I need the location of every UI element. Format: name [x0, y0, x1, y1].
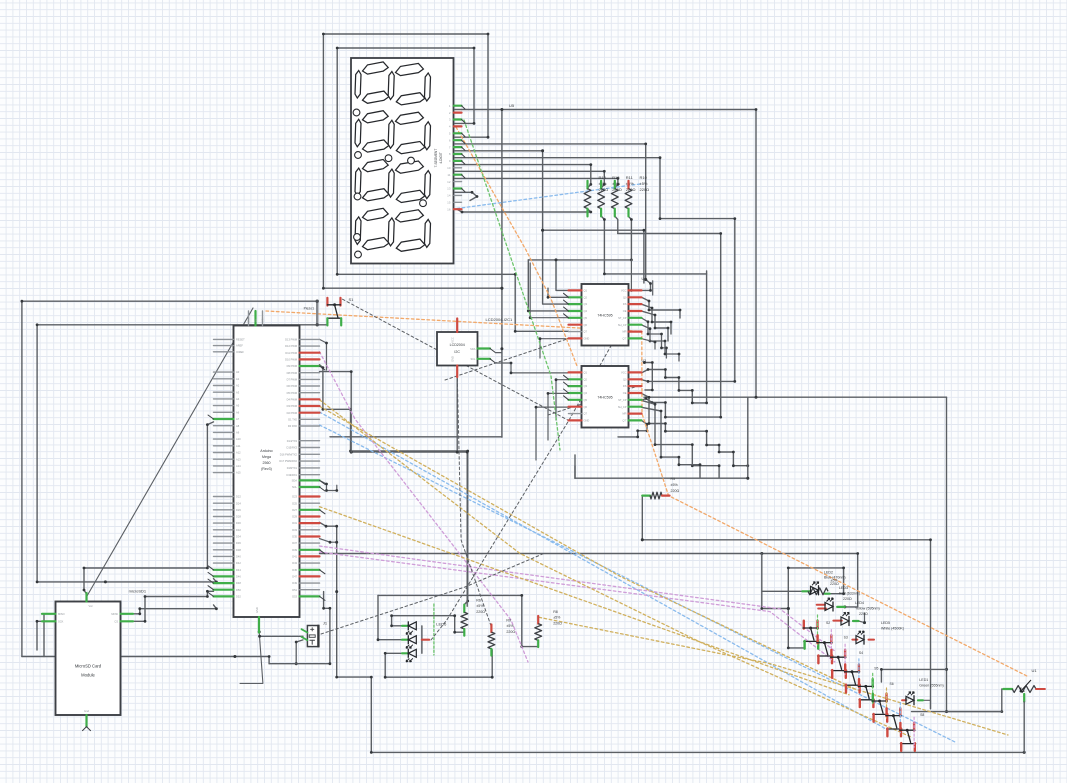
svg-text:VCC: VCC: [621, 371, 627, 375]
svg-text:I2C: I2C: [454, 350, 460, 354]
svg-text:U1: U1: [1032, 668, 1038, 673]
svg-text:D51: D51: [292, 588, 297, 592]
svg-text:MR: MR: [622, 330, 626, 334]
svg-text:SH_CP: SH_CP: [618, 323, 627, 327]
svg-text:D10 PWM: D10 PWM: [285, 358, 297, 362]
svg-text:Piezo1: Piezo1: [304, 307, 314, 311]
svg-text:A13: A13: [236, 457, 241, 461]
svg-text:AREF: AREF: [236, 344, 243, 348]
svg-text:VCC: VCC: [451, 337, 455, 343]
svg-text:Q0: Q0: [623, 377, 627, 381]
svg-text:LED1: LED1: [919, 678, 928, 682]
svg-text:±5%: ±5%: [612, 181, 620, 186]
svg-text:GND: GND: [584, 419, 590, 423]
svg-text:D35: D35: [292, 535, 297, 539]
svg-text:D11 PWM: D11 PWM: [285, 351, 297, 355]
svg-text:D12 PWM: D12 PWM: [285, 344, 297, 348]
svg-text:MR: MR: [622, 412, 626, 416]
svg-text:Q3: Q3: [584, 302, 588, 306]
svg-text:VCC: VCC: [621, 289, 627, 293]
svg-text:microSD1: microSD1: [129, 589, 147, 594]
svg-text:White (4500K): White (4500K): [881, 627, 904, 631]
svg-text:D18/TX1: D18/TX1: [287, 466, 298, 470]
svg-text:Q1: Q1: [584, 289, 588, 293]
svg-text:S6: S6: [890, 682, 894, 686]
svg-text:4-DIGIT: 4-DIGIT: [439, 152, 443, 163]
svg-text:SDA: SDA: [470, 347, 476, 351]
svg-text:S1: S1: [349, 297, 355, 302]
svg-text:D15/RX3: D15/RX3: [286, 446, 297, 450]
svg-text:Q4: Q4: [584, 391, 588, 395]
svg-text:DS: DS: [623, 384, 627, 388]
svg-text:2560: 2560: [263, 461, 271, 465]
svg-text:D50: D50: [236, 588, 241, 592]
svg-text:D52: D52: [236, 595, 241, 599]
svg-text:Mega: Mega: [262, 455, 271, 459]
svg-text:D53: D53: [292, 595, 297, 599]
svg-text:220Ω: 220Ω: [506, 630, 515, 634]
svg-text:Arduino: Arduino: [260, 449, 272, 453]
svg-text:SDA: SDA: [292, 479, 298, 483]
svg-text:D45: D45: [292, 568, 297, 572]
svg-text:±5%: ±5%: [506, 624, 514, 628]
svg-text:D46: D46: [236, 575, 241, 579]
svg-text:U3: U3: [642, 359, 647, 363]
svg-text:D44: D44: [236, 568, 241, 572]
svg-text:OE: OE: [623, 391, 627, 395]
svg-text:R9: R9: [506, 618, 511, 622]
svg-text:D36: D36: [236, 541, 241, 545]
svg-text:±5%: ±5%: [553, 616, 561, 620]
svg-text:GND: GND: [451, 356, 455, 362]
svg-text:Q7': Q7': [623, 419, 627, 423]
svg-text:S8: S8: [920, 713, 924, 717]
svg-text:A3: A3: [236, 390, 240, 394]
svg-text:LED2: LED2: [824, 571, 833, 575]
svg-text:MOSI: MOSI: [111, 612, 118, 616]
svg-text:14: 14: [447, 194, 451, 198]
svg-text:R6: R6: [476, 598, 481, 602]
svg-text:5V: 5V: [254, 319, 258, 322]
svg-text:7-SEGMENT: 7-SEGMENT: [434, 149, 438, 168]
svg-text:Q1: Q1: [584, 371, 588, 375]
svg-text:16: 16: [447, 207, 451, 211]
svg-text:CS: CS: [114, 620, 118, 624]
svg-text:S4: S4: [859, 651, 863, 655]
svg-text:220Ω: 220Ω: [859, 612, 868, 616]
svg-text:Vcc: Vcc: [89, 604, 94, 608]
svg-text:A12: A12: [236, 451, 241, 455]
svg-text:±5%: ±5%: [476, 604, 484, 608]
svg-text:Q3: Q3: [584, 384, 588, 388]
svg-text:R8: R8: [553, 610, 558, 614]
svg-text:A0: A0: [236, 370, 240, 374]
svg-text:D1 TX0: D1 TX0: [288, 417, 297, 421]
svg-text:MISO: MISO: [58, 612, 65, 616]
svg-text:D31: D31: [292, 521, 297, 525]
svg-text:D47: D47: [292, 575, 297, 579]
svg-text:D5 PWM: D5 PWM: [287, 391, 297, 395]
svg-text:Gnd: Gnd: [84, 709, 89, 713]
svg-text:3V3: 3V3: [247, 317, 251, 322]
svg-text:D13 PWM: D13 PWM: [285, 338, 297, 342]
svg-text:Q2: Q2: [584, 377, 588, 381]
svg-text:MicroSD Card: MicroSD Card: [75, 664, 102, 669]
svg-text:D25: D25: [292, 501, 297, 505]
svg-text:Q6: Q6: [584, 405, 588, 409]
svg-text:R13: R13: [599, 175, 607, 180]
svg-text:12: 12: [447, 180, 451, 184]
svg-text:A1: A1: [236, 377, 240, 381]
svg-text:D22: D22: [236, 495, 241, 499]
svg-text:S3: S3: [844, 636, 848, 640]
svg-text:Q7: Q7: [584, 330, 588, 334]
svg-text:VIN: VIN: [261, 318, 265, 322]
svg-text:D26: D26: [236, 508, 241, 512]
svg-text:D30: D30: [236, 521, 241, 525]
svg-text:(Rev3): (Rev3): [261, 467, 272, 471]
svg-text:Red (633nm): Red (633nm): [839, 592, 860, 596]
svg-text:Q7: Q7: [584, 412, 588, 416]
svg-text:D33: D33: [292, 528, 297, 532]
svg-text:Yellow (595nm): Yellow (595nm): [855, 607, 880, 611]
svg-text:Q0: Q0: [623, 295, 627, 299]
svg-text:10: 10: [447, 166, 451, 170]
svg-text:U4: U4: [642, 277, 647, 281]
svg-text:D42: D42: [236, 561, 241, 565]
svg-text:D38: D38: [236, 548, 241, 552]
svg-text:220Ω: 220Ω: [476, 610, 485, 614]
svg-text:D27: D27: [292, 508, 297, 512]
svg-text:D32: D32: [236, 528, 241, 532]
svg-text:D7 PWM: D7 PWM: [287, 378, 297, 382]
svg-text:A8: A8: [236, 424, 240, 428]
svg-text:A2: A2: [236, 384, 240, 388]
svg-text:Q7': Q7': [623, 337, 627, 341]
svg-text:D16 PWM/TX2: D16 PWM/TX2: [280, 452, 298, 456]
svg-text:D40: D40: [236, 555, 241, 559]
svg-text:Q4: Q4: [584, 309, 588, 313]
svg-text:D24: D24: [236, 501, 241, 505]
svg-text:SCL: SCL: [470, 357, 476, 361]
svg-text:D19/RX1: D19/RX1: [286, 473, 297, 477]
svg-text:D29: D29: [292, 515, 297, 519]
svg-text:A6: A6: [236, 410, 240, 414]
svg-text:LED4: LED4: [855, 601, 864, 605]
svg-text:SCK: SCK: [58, 620, 64, 624]
svg-text:D48: D48: [236, 581, 241, 585]
svg-text:R12: R12: [612, 175, 620, 180]
svg-text:15: 15: [447, 201, 451, 205]
svg-text:S7: S7: [905, 698, 909, 702]
svg-text:D0 RX0: D0 RX0: [288, 424, 298, 428]
svg-text:D6 PWM: D6 PWM: [287, 384, 297, 388]
svg-text:220Ω: 220Ω: [843, 597, 852, 601]
svg-text:D4 PWM: D4 PWM: [287, 397, 297, 401]
svg-text:Q6: Q6: [584, 323, 588, 327]
svg-text:A7: A7: [236, 417, 240, 421]
svg-text:D14/TX3: D14/TX3: [287, 439, 298, 443]
svg-text:OE: OE: [623, 309, 627, 313]
svg-text:D3 PWM: D3 PWM: [287, 404, 297, 408]
svg-text:D39: D39: [292, 548, 297, 552]
svg-text:A4: A4: [236, 397, 240, 401]
svg-text:D34: D34: [236, 535, 241, 539]
svg-text:U5: U5: [509, 103, 515, 108]
svg-text:74HC595: 74HC595: [597, 396, 612, 400]
svg-text:A10: A10: [236, 437, 241, 441]
svg-text:LED6: LED6: [436, 621, 447, 626]
svg-text:D17 PWM/RX2: D17 PWM/RX2: [279, 459, 297, 463]
svg-text:IOREF: IOREF: [236, 350, 244, 354]
svg-text:D43: D43: [292, 561, 297, 565]
svg-text:A11: A11: [236, 444, 241, 448]
svg-text:±5%: ±5%: [640, 181, 648, 186]
svg-text:S5: S5: [874, 667, 878, 671]
svg-text:LED5: LED5: [881, 621, 890, 625]
svg-text:D28: D28: [236, 515, 241, 519]
svg-text:LCD2004-I2C1: LCD2004-I2C1: [486, 317, 513, 322]
svg-text:A15: A15: [236, 471, 241, 475]
svg-text:±5%: ±5%: [671, 483, 679, 487]
svg-text:Q5: Q5: [584, 316, 588, 320]
svg-text:GND: GND: [255, 607, 259, 613]
svg-text:RESET: RESET: [236, 338, 245, 342]
svg-text:D37: D37: [292, 541, 297, 545]
svg-text:74HC595: 74HC595: [597, 314, 612, 318]
svg-text:D2 PWM: D2 PWM: [287, 411, 297, 415]
svg-text:220Ω: 220Ω: [553, 621, 562, 625]
svg-text:220Ω: 220Ω: [671, 489, 680, 493]
svg-text:Green (555nm): Green (555nm): [919, 684, 943, 688]
svg-text:S2: S2: [826, 621, 830, 625]
svg-text:D49: D49: [292, 581, 297, 585]
svg-text:D41: D41: [292, 555, 297, 559]
svg-text:SH_CP: SH_CP: [618, 405, 627, 409]
svg-text:A9: A9: [236, 431, 240, 435]
svg-text:13: 13: [447, 187, 451, 191]
svg-text:A5: A5: [236, 404, 240, 408]
svg-text:±5%: ±5%: [626, 181, 634, 186]
svg-text:D9 PWM: D9 PWM: [287, 364, 297, 368]
svg-text:A14: A14: [236, 464, 241, 468]
svg-text:SCL: SCL: [292, 485, 298, 489]
svg-text:±5%: ±5%: [599, 181, 607, 186]
svg-text:220Ω: 220Ω: [640, 187, 650, 192]
svg-text:R11: R11: [626, 175, 634, 180]
svg-text:DS: DS: [623, 302, 627, 306]
svg-text:D8 PWM: D8 PWM: [287, 371, 297, 375]
svg-text:GND: GND: [584, 337, 590, 341]
svg-text:R5: R5: [671, 477, 676, 481]
svg-text:Module: Module: [81, 673, 95, 678]
svg-text:Q5: Q5: [584, 398, 588, 402]
svg-text:11: 11: [447, 173, 450, 177]
svg-text:D23: D23: [292, 495, 297, 499]
svg-text:220Ω: 220Ω: [830, 582, 839, 586]
svg-text:ST_CP: ST_CP: [618, 398, 627, 402]
svg-text:R10: R10: [640, 175, 648, 180]
svg-text:ST_CP: ST_CP: [618, 316, 627, 320]
svg-text:LED3: LED3: [839, 586, 848, 590]
svg-text:Q2: Q2: [584, 295, 588, 299]
